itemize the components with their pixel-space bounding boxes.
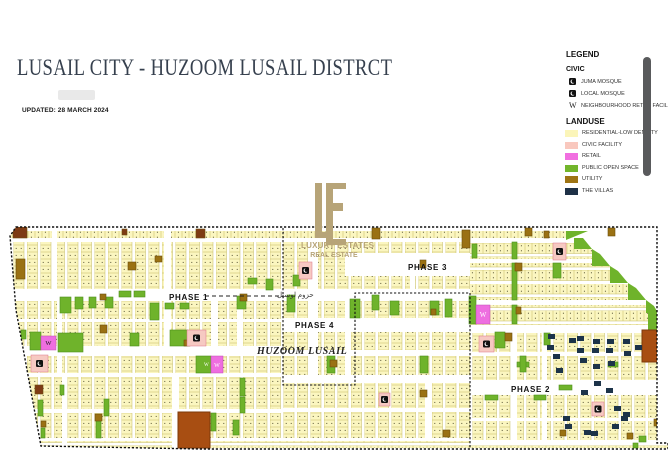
svg-text:W: W bbox=[480, 311, 487, 319]
svg-text:PHASE 1: PHASE 1 bbox=[169, 293, 208, 302]
svg-text:W: W bbox=[204, 363, 209, 368]
svg-text:HUZOOM LUSAIL: HUZOOM LUSAIL bbox=[256, 346, 347, 357]
svg-text:W: W bbox=[45, 340, 52, 347]
svg-text:PHASE 2: PHASE 2 bbox=[511, 385, 550, 394]
svg-text:W: W bbox=[214, 363, 220, 369]
svg-text:PHASE 4: PHASE 4 bbox=[295, 321, 334, 330]
svg-text:حزوم لوسيل: حزوم لوسيل bbox=[277, 291, 314, 299]
